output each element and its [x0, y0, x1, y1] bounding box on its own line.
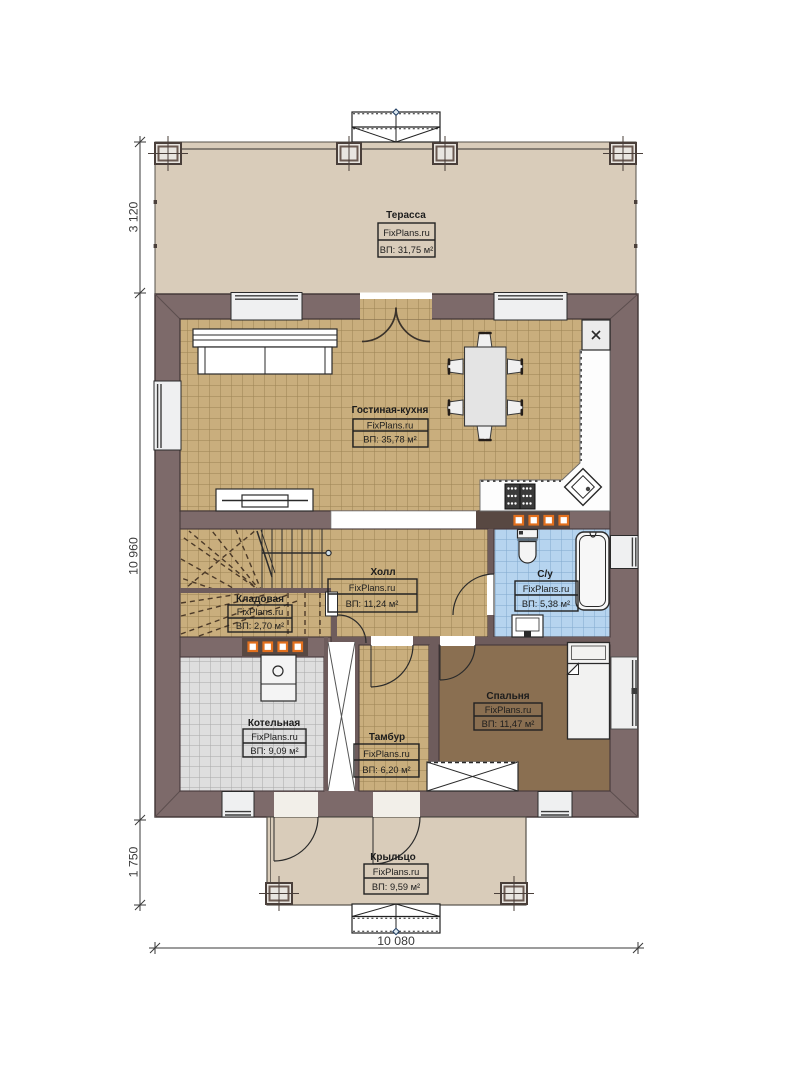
svg-text:ВП: 11,24 м²: ВП: 11,24 м² — [346, 599, 399, 609]
svg-text:FixPlans.ru: FixPlans.ru — [237, 607, 284, 617]
svg-text:Крыльцо: Крыльцо — [370, 852, 416, 863]
svg-text:ВП: 5,38 м²: ВП: 5,38 м² — [522, 599, 570, 609]
svg-text:С/у: С/у — [537, 569, 553, 580]
svg-text:Терасса: Терасса — [386, 210, 426, 221]
svg-text:ВП: 6,20 м²: ВП: 6,20 м² — [362, 765, 410, 775]
svg-text:FixPlans.ru: FixPlans.ru — [523, 584, 570, 594]
svg-text:FixPlans.ru: FixPlans.ru — [367, 421, 414, 431]
svg-text:FixPlans.ru: FixPlans.ru — [251, 732, 298, 742]
svg-text:ВП: 35,78 м²: ВП: 35,78 м² — [363, 435, 416, 445]
svg-text:FixPlans.ru: FixPlans.ru — [383, 228, 430, 238]
svg-text:FixPlans.ru: FixPlans.ru — [363, 749, 410, 759]
svg-text:ВП: 9,59 м²: ВП: 9,59 м² — [372, 882, 420, 892]
svg-text:3 120: 3 120 — [127, 201, 141, 232]
svg-text:10 080: 10 080 — [377, 934, 415, 948]
svg-text:Кладовая: Кладовая — [236, 594, 284, 605]
svg-text:Котельная: Котельная — [248, 718, 301, 729]
svg-text:Холл: Холл — [370, 567, 395, 578]
svg-text:ВП: 11,47 м²: ВП: 11,47 м² — [482, 719, 535, 729]
svg-text:Гостиная-кухня: Гостиная-кухня — [352, 405, 429, 416]
svg-text:FixPlans.ru: FixPlans.ru — [349, 583, 396, 593]
svg-text:FixPlans.ru: FixPlans.ru — [485, 705, 532, 715]
svg-text:Тамбур: Тамбур — [369, 731, 405, 743]
svg-text:10 960: 10 960 — [127, 537, 141, 575]
svg-text:ВП: 2,70 м²: ВП: 2,70 м² — [236, 621, 284, 631]
svg-text:FixPlans.ru: FixPlans.ru — [373, 867, 420, 877]
svg-text:ВП: 9,09 м²: ВП: 9,09 м² — [250, 746, 298, 756]
svg-text:1 750: 1 750 — [127, 846, 141, 877]
svg-text:Спальня: Спальня — [486, 691, 529, 702]
svg-text:ВП: 31,75 м²: ВП: 31,75 м² — [380, 245, 433, 255]
